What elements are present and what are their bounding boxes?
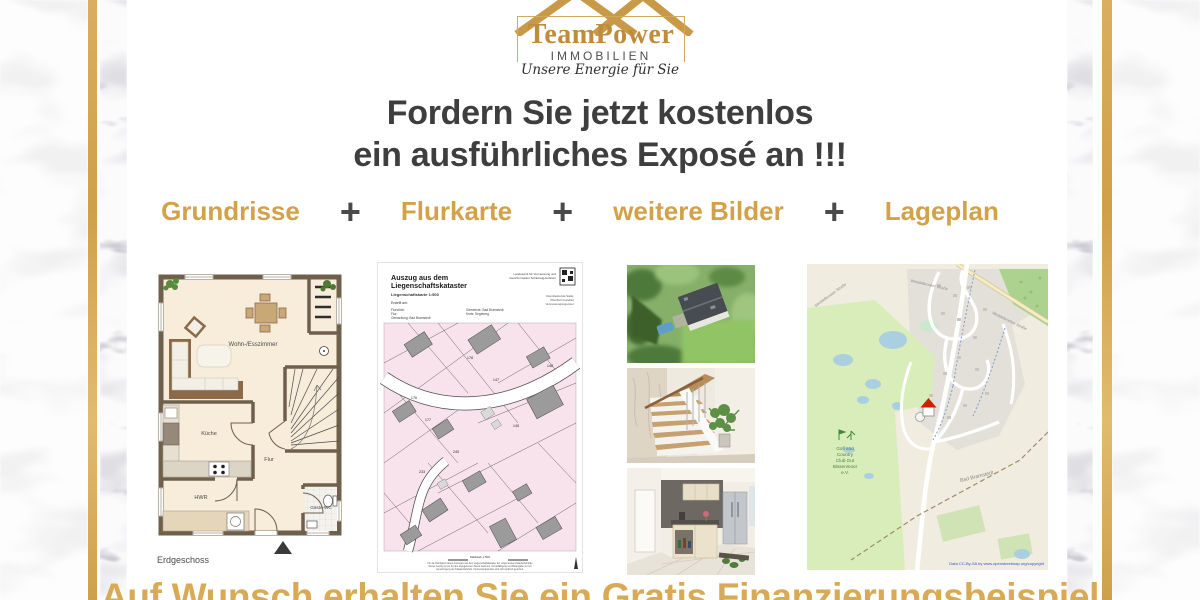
footer-offer-text: Auf Wunsch erhalten Sie ein Gratis Finan… — [0, 576, 1200, 600]
cadastral-meta: Gemarkung: Bad Bramstedt — [391, 316, 431, 320]
parcel-number: 148 — [547, 364, 553, 368]
north-arrow-icon — [274, 541, 292, 554]
cadastral-map-image: Auszug aus dem Liegenschaftskataster Lie… — [378, 263, 582, 572]
gold-stripe-left — [88, 0, 97, 600]
headline-line1: Fordern Sie jetzt kostenlos — [0, 92, 1200, 134]
marble-strip-right — [1067, 0, 1093, 600]
cadastral-created: Erstellt am: — [391, 301, 408, 305]
plus-icon: + — [824, 197, 845, 227]
parcel-number: 176 — [411, 396, 417, 400]
floorplan-image: Wohn-/Esszimmer Küche Flur HWR Gäste-WC — [157, 273, 343, 537]
photo-kitchen — [627, 468, 755, 575]
marble-border-left-outer — [0, 0, 88, 600]
features-row: Grundrisse + Flurkarte + weitere Bilder … — [130, 196, 1030, 227]
photo-staircase — [627, 368, 755, 463]
feature-grundrisse: Grundrisse — [161, 196, 300, 227]
brand-name: TeamPower — [518, 20, 684, 50]
cadastral-title-line2: Liegenschaftskataster — [391, 281, 467, 290]
cadastral-issuer: Geoinformation Schleswig-Holstein — [509, 276, 556, 280]
headline-line2: ein ausführliches Exposé an !!! — [0, 134, 1200, 176]
room-label-wc: Gäste-WC — [310, 505, 332, 510]
golf-club-label: Club Gut — [836, 458, 855, 463]
cadastral-scale: Maßstab 1:500 — [470, 555, 490, 559]
room-label-kitchen: Küche — [201, 431, 217, 437]
parcel-number: 233 — [419, 470, 425, 474]
photo-aerial-view — [627, 265, 755, 363]
golf-club-label: Country — [837, 452, 854, 457]
plus-icon: + — [340, 197, 361, 227]
plus-icon: + — [552, 197, 573, 227]
golf-club-label: Golf and — [836, 446, 854, 451]
feature-flurkarte: Flurkarte — [401, 196, 512, 227]
gold-stripe-right — [1102, 0, 1112, 600]
room-label-utility: HWR — [194, 495, 207, 501]
cadastral-footnote: Für die Richtigkeit dieses Auszuges aus … — [428, 562, 534, 565]
golf-club-label: e.V. — [841, 470, 849, 475]
cadastral-office: Vermessungsingenieur — [546, 302, 575, 306]
parcel-number: 177 — [425, 418, 431, 422]
room-label-living: Wohn-/Esszimmer — [229, 342, 278, 348]
feature-lageplan: Lageplan — [885, 196, 999, 227]
map-copyright: Data CC-By-SA by www.openstreetmap.org/c… — [949, 561, 1045, 566]
brand-tagline: Unsere Energie für Sie — [512, 62, 688, 78]
authority-emblem-icon — [560, 268, 575, 285]
cadastral-footnote: Genehmigung der Katasterbehörde. Vermess… — [436, 568, 524, 571]
golf-club-label: Bissenmoor — [833, 464, 858, 469]
cadastral-subtitle: Liegenschaftskarte 1:500 — [391, 292, 440, 297]
parcel-number: 145 — [513, 424, 519, 428]
marble-border-right-outer — [1112, 0, 1200, 600]
parcel-number: 178 — [467, 356, 473, 360]
marble-strip-left — [100, 0, 127, 600]
parcel-number: 245 — [453, 450, 459, 454]
brand-tagline-row: Unsere Energie für Sie — [500, 61, 700, 79]
feature-weitere-bilder: weitere Bilder — [613, 196, 784, 227]
cadastral-meta: Kreis: Segeberg — [466, 312, 489, 316]
room-label-hall: Flur — [264, 457, 274, 463]
location-map-image: Golf and Country Club Gut Bissenmoor e.V… — [807, 264, 1048, 570]
cadastral-footnote: Dieser Auszug ist nur für den angegebene… — [429, 565, 532, 568]
page-title: Fordern Sie jetzt kostenlos ein ausführl… — [0, 92, 1200, 176]
parcel-number: 147 — [493, 378, 499, 382]
floorplan-caption: Erdgeschoss — [157, 555, 209, 565]
